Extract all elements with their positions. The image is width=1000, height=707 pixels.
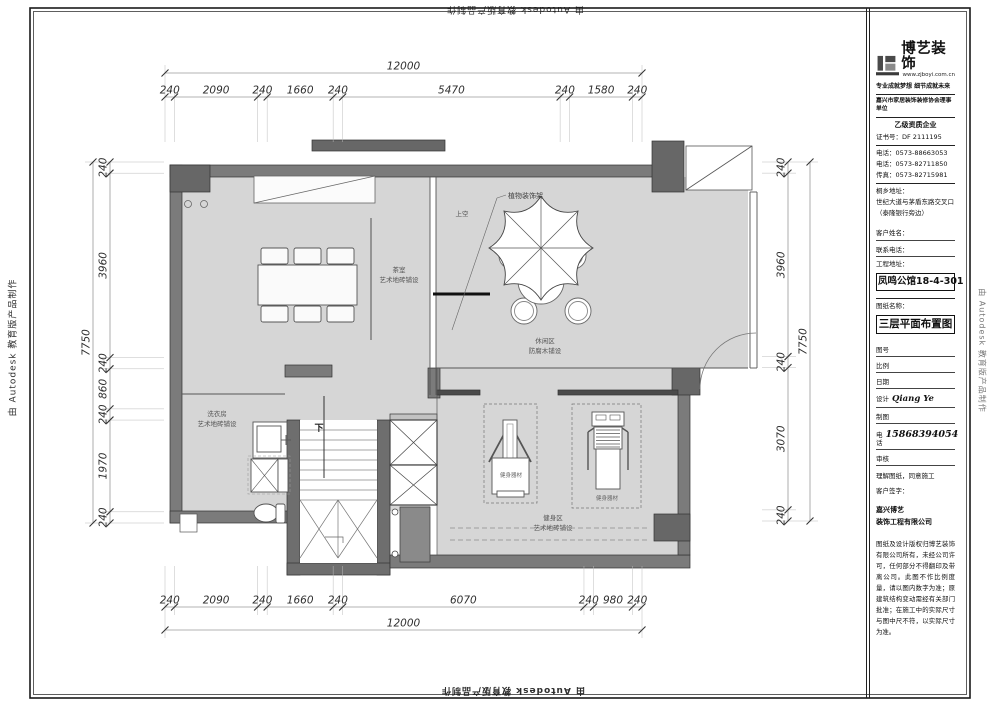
brand-row: 博艺装饰 www.zjboyi.com.cn: [876, 42, 955, 79]
dim-right: 240396024030702407750: [762, 157, 818, 525]
label-tea-room-floor: 艺术地砖铺设: [380, 275, 420, 284]
label-open-above: 上空: [456, 209, 470, 218]
label-equipment-2: 健身器材: [596, 494, 619, 502]
svg-text:240: 240: [98, 404, 110, 424]
title-block: 博艺装饰 www.zjboyi.com.cn 专业成就梦想 细节成就未来 嘉兴市…: [869, 8, 960, 698]
svg-text:12000: 12000: [387, 618, 421, 630]
svg-text:240: 240: [98, 353, 110, 373]
svg-text:980: 980: [603, 595, 623, 607]
company-line2: 装饰工程有限公司: [876, 517, 955, 529]
date-field: 日期: [876, 378, 955, 389]
svg-text:2090: 2090: [203, 85, 230, 97]
svg-text:240: 240: [328, 595, 348, 607]
tel1: 电话：0573-88663053: [876, 149, 955, 157]
fig-no-label: 图号: [876, 346, 889, 354]
sign-label: 客户签字：: [876, 487, 955, 495]
tel2: 电话：0573-82711850: [876, 160, 955, 168]
svg-text:860: 860: [98, 379, 110, 399]
svg-text:3960: 3960: [98, 252, 110, 279]
draft-label: 制图: [876, 413, 889, 421]
svg-text:240: 240: [252, 595, 272, 607]
svg-text:240: 240: [98, 507, 110, 527]
svg-text:240: 240: [776, 352, 788, 372]
client-name-field: 客户姓名：: [876, 229, 955, 240]
agree-note: 理解图纸，同意施工: [876, 472, 955, 480]
addr-label: 桐乡地址：: [876, 187, 955, 195]
svg-text:3070: 3070: [776, 425, 788, 452]
design-field: 设计 Qiang Ye: [876, 394, 955, 408]
drawing-name: 三层平面布置图: [876, 315, 955, 334]
designer-signature: Qiang Ye: [892, 394, 934, 405]
svg-text:240: 240: [160, 595, 180, 607]
company-line1: 嘉兴博艺: [876, 505, 955, 517]
drawing-sheet: 由 Autodesk 教育版产品制作 由 Autodesk 教育版产品制作 由 …: [0, 0, 1000, 707]
date-label: 日期: [876, 378, 889, 386]
svg-text:2090: 2090: [203, 595, 230, 607]
addr-line1: 世纪大道与茅盾东路交叉口: [876, 198, 955, 206]
scale-field: 比例: [876, 362, 955, 373]
svg-text:3960: 3960: [776, 251, 788, 278]
shafts: [390, 420, 437, 562]
review-field: 审核: [876, 455, 955, 466]
addr-line2: （泰隆银行旁边）: [876, 209, 955, 217]
svg-text:240: 240: [160, 85, 180, 97]
label-plant-rack: 植物装饰架: [508, 191, 543, 200]
review-label: 审核: [876, 455, 889, 463]
phone-number: 15868394054: [886, 429, 959, 441]
label-leisure-floor: 防腐木铺设: [529, 346, 562, 355]
svg-text:1580: 1580: [588, 85, 615, 97]
svg-text:240: 240: [579, 595, 599, 607]
label-gym: 健身区: [543, 513, 563, 522]
dim-top: 240209024016602405470240158024012000: [160, 61, 648, 143]
phone-field: 电话 15868394054: [876, 429, 955, 450]
svg-text:240: 240: [627, 595, 647, 607]
draft-field: 制图: [876, 413, 955, 424]
brand-name: 博艺装饰: [901, 42, 955, 71]
svg-text:6070: 6070: [450, 595, 477, 607]
scale-label: 比例: [876, 362, 889, 370]
balcony-skylight: [686, 146, 752, 190]
boyi-logo-icon: [876, 53, 899, 79]
svg-text:240: 240: [555, 85, 575, 97]
contact-field: 联系电话：: [876, 246, 955, 257]
svg-text:240: 240: [98, 157, 110, 177]
slogan: 专业成就梦想 细节成就未来: [876, 83, 955, 91]
label-tea-room: 茶室: [393, 265, 407, 274]
disclaimer: 图纸及设计版权归博艺装饰有限公司所有，未经公司许可，任何部分不得翻印及带离公司。…: [876, 539, 955, 638]
svg-text:240: 240: [776, 157, 788, 177]
svg-text:240: 240: [328, 85, 348, 97]
svg-text:7750: 7750: [81, 329, 93, 356]
label-equipment-1: 健身器材: [500, 471, 523, 479]
label-laundry-floor: 艺术地砖铺设: [198, 419, 238, 428]
svg-text:1660: 1660: [287, 85, 314, 97]
grade: 乙级资质企业: [876, 121, 955, 130]
project-addr-label: 工程地址：: [876, 260, 955, 268]
svg-text:240: 240: [252, 85, 272, 97]
svg-text:1970: 1970: [98, 452, 110, 479]
staircase: [300, 396, 377, 563]
cert-label: 证书号：: [876, 133, 902, 141]
design-label: 设计: [876, 395, 889, 403]
project-name: 凤鸣公馆18-4-301: [876, 273, 955, 291]
floor-fills: [182, 177, 748, 555]
association: 嘉兴市家居装饰装修协会理事单位: [876, 98, 955, 112]
label-laundry: 洗衣房: [207, 409, 227, 418]
company-name: 嘉兴博艺 装饰工程有限公司: [876, 505, 955, 529]
label-stairs-down: 下: [314, 423, 323, 434]
svg-text:240: 240: [776, 505, 788, 525]
cert-no: DF 2111195: [902, 133, 942, 141]
label-gym-floor: 艺术地砖铺设: [534, 523, 574, 532]
floor-plan-canvas: 植物装饰架 上空 茶室 艺术地砖铺设 休闲区 防腐木铺设 洗衣房 艺术地砖铺设 …: [0, 0, 1000, 707]
fig-no-field: 图号: [876, 346, 955, 357]
label-leisure: 休闲区: [535, 336, 555, 345]
phone-label: 电话: [876, 431, 883, 447]
svg-text:5470: 5470: [438, 85, 465, 97]
svg-text:7750: 7750: [798, 328, 810, 355]
contact-label: 联系电话：: [876, 246, 909, 254]
svg-text:1660: 1660: [287, 595, 314, 607]
brand-url: www.zjboyi.com.cn: [901, 72, 955, 79]
dim-bottom: 24020902401660240607024098024012000: [160, 566, 648, 638]
drawing-name-label: 图纸名称：: [876, 302, 955, 310]
fax: 传真：0573-82715981: [876, 171, 955, 179]
client-name-label: 客户姓名：: [876, 229, 909, 237]
dim-left: 240396024086024019702407750: [81, 157, 165, 527]
cert-row: 证书号：DF 2111195: [876, 133, 955, 141]
svg-text:12000: 12000: [387, 61, 421, 73]
dining-set: [258, 248, 357, 322]
svg-text:240: 240: [627, 85, 647, 97]
